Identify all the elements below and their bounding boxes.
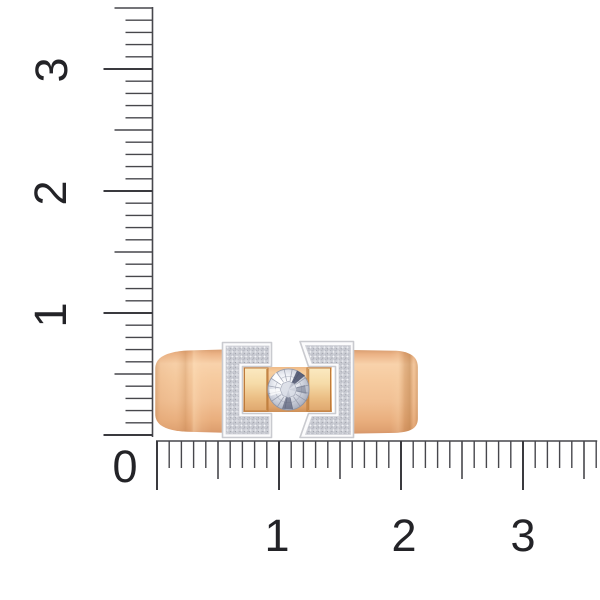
right-prong — [307, 368, 331, 411]
vertical-ruler-number: 2 — [19, 161, 83, 225]
horizontal-ruler-number: 1 — [245, 504, 309, 568]
horizontal-ruler-number: 2 — [372, 504, 436, 568]
center-diamond — [268, 369, 310, 411]
horizontal-ruler-number: 3 — [491, 504, 555, 568]
ring — [155, 342, 418, 438]
origin-number: 0 — [93, 435, 157, 499]
left-prong — [245, 368, 269, 411]
ring-band-right — [352, 350, 418, 434]
jewelry-scale-photo: 1231230 — [0, 0, 600, 600]
vertical-ruler-number: 3 — [20, 38, 84, 102]
ring-band-left — [155, 350, 224, 433]
vertical-ruler-number: 1 — [19, 283, 83, 347]
